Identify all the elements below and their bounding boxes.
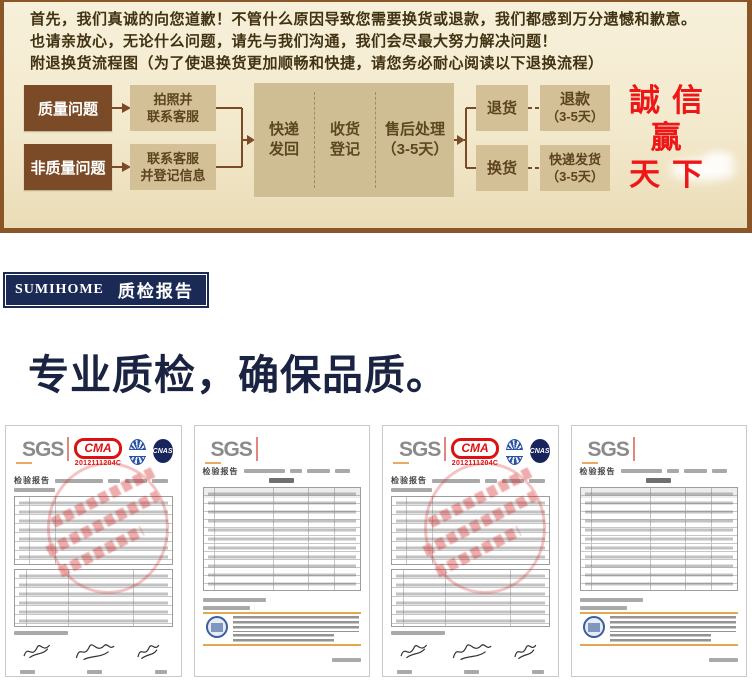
blurred-text <box>244 469 285 473</box>
slogan-line-3: 天 下 <box>612 156 722 193</box>
flow-reship-line2: （3-5天） <box>546 168 604 185</box>
sgs-logo-accent <box>633 437 635 461</box>
sgs-logo-text: SGS <box>211 438 252 461</box>
sample-note-line <box>14 486 173 493</box>
sgs-logo-accent <box>67 437 69 461</box>
cma-logo: CMA 2012111204C <box>451 438 498 467</box>
blurred-text <box>203 598 266 602</box>
certificate-footer <box>203 612 362 646</box>
flow-exchange-label: 换货 <box>487 160 517 177</box>
report-label: 检验报告 <box>203 466 239 477</box>
page: 首先，我们真诚的向您道歉！不管什么原因导致您需要换货或退款，我们都感到万分遗憾和… <box>0 0 752 692</box>
certificate-footer <box>580 612 739 646</box>
blurred-table-text <box>19 572 168 624</box>
integrity-slogan: 誠 信 贏 天 下 <box>612 82 722 193</box>
blurred-table-text <box>396 572 545 624</box>
signatures <box>391 637 550 667</box>
test-results-table <box>203 487 362 591</box>
sgs-logo-underline <box>582 462 598 464</box>
table-title-line <box>580 477 739 485</box>
certificate-3-header: SGS CMA 2012111204C CNAS <box>391 437 550 472</box>
report-banner-title: 质检报告 <box>118 277 194 302</box>
apology-text: 首先，我们真诚的向您道歉！不管什么原因导致您需要换货或退款，我们都感到万分遗憾和… <box>4 2 747 75</box>
blurred-text <box>391 631 445 635</box>
proc-col2-line2: 登记 <box>330 140 360 160</box>
blurred-text <box>14 631 68 635</box>
blurred-text <box>485 479 498 483</box>
blurred-text <box>432 479 480 483</box>
flow-reship-line1: 快递发货 <box>549 151 601 168</box>
cnas-text: CNAS <box>153 448 173 455</box>
cma-logo-text: CMA <box>461 441 488 455</box>
info-table <box>391 496 550 565</box>
cma-logo-mark: CMA <box>451 438 498 459</box>
flow-return-label: 退货 <box>487 100 517 117</box>
flow-refund-box: 退款 （3-5天） <box>540 85 610 131</box>
sgs-logo: SGS <box>580 437 633 461</box>
certificates-row: SGS CMA 2012111204C CNAS 检验报告 <box>0 425 752 677</box>
certificate-4-header: SGS <box>580 437 739 463</box>
sgs-logo-accent <box>444 437 446 461</box>
quality-headline: 专业质检，确保品质。 <box>28 341 752 401</box>
flow-return-box: 退货 <box>476 85 528 131</box>
flow-contact-line1: 联系客服 <box>147 150 199 167</box>
ilac-mra-emblem-icon <box>129 439 146 465</box>
slogan-line-1: 誠 信 <box>612 82 722 119</box>
table-notes <box>580 594 739 610</box>
cnas-emblem-icon: CNAS <box>153 439 173 463</box>
sgs-logo-text: SGS <box>588 438 629 461</box>
results-table <box>14 569 173 627</box>
sgs-logo: SGS <box>391 437 444 461</box>
certificate-1: SGS CMA 2012111204C CNAS 检验报告 <box>5 425 182 677</box>
blurred-text <box>108 479 121 483</box>
blurred-footer-text <box>233 634 334 642</box>
blurred-text <box>125 479 147 483</box>
blurred-text <box>712 469 728 473</box>
flow-process-aftersale: 售后处理 （3-5天） <box>376 92 454 188</box>
flow-quality-problem-box: 质量问题 <box>24 85 112 131</box>
flow-refund-line2: （3-5天） <box>546 108 604 125</box>
flow-refund-line1: 退款 <box>560 91 590 108</box>
sgs-logo: SGS <box>14 437 67 461</box>
blurred-text <box>332 658 361 662</box>
seal-inner <box>588 623 600 632</box>
flow-quality-problem-label: 质量问题 <box>38 98 98 119</box>
report-banner-inner: SUMIHOME 质检报告 <box>5 274 207 306</box>
cma-logo-text: CMA <box>84 441 111 455</box>
cnas-emblem-icon: CNAS <box>530 439 550 463</box>
report-number-line: 检验报告 <box>391 475 550 486</box>
notice-line-3: 附退换货流程图（为了使退换货更加顺畅和快捷，请您务必耐心阅读以下退换流程） <box>30 53 747 75</box>
blurred-footer-text <box>233 616 360 632</box>
blurred-table-text <box>396 499 545 562</box>
report-number-line: 检验报告 <box>203 466 362 477</box>
blurred-text <box>152 479 168 483</box>
footer-tail-line <box>203 649 362 667</box>
blurred-text <box>55 479 103 483</box>
signature-strokes <box>391 637 550 665</box>
blurred-text <box>397 670 412 674</box>
sgs-logo-underline <box>205 462 221 464</box>
proc-col1-line1: 快递 <box>269 120 299 140</box>
blurred-footer-text <box>610 616 737 632</box>
certificate-3: SGS CMA 2012111204C CNAS 检验报告 <box>382 425 559 677</box>
report-banner: SUMIHOME 质检报告 <box>3 272 209 308</box>
seal-inner <box>211 623 223 632</box>
blurred-text <box>269 478 294 483</box>
blurred-text <box>391 488 432 492</box>
blurred-text <box>684 469 706 473</box>
flow-photo-line1: 拍照并 <box>153 91 192 108</box>
sgs-logo-text: SGS <box>399 438 440 461</box>
slogan-line-2: 贏 <box>612 119 722 156</box>
flow-non-quality-problem-label: 非质量问题 <box>30 157 105 178</box>
table-notes <box>203 594 362 610</box>
report-label: 检验报告 <box>580 466 616 477</box>
proc-col2-line1: 收货 <box>330 120 360 140</box>
signatures <box>14 637 173 667</box>
signature-strokes <box>14 637 173 665</box>
certificate-1-header: SGS CMA 2012111204C CNAS <box>14 437 173 472</box>
proc-col3-line1: 售后处理 <box>385 120 445 140</box>
cma-code: 2012111204C <box>451 460 498 467</box>
proc-col3-line2: （3-5天） <box>382 140 449 160</box>
company-line <box>391 627 550 635</box>
blurred-footer-text <box>610 634 711 642</box>
results-table <box>391 569 550 627</box>
cnas-text: CNAS <box>530 448 550 455</box>
flow-photo-line2: 联系客服 <box>147 108 199 125</box>
ilac-band <box>506 449 523 457</box>
cma-code: 2012111204C <box>74 460 121 467</box>
cma-logo: CMA 2012111204C <box>74 438 121 467</box>
blurred-text <box>155 670 167 674</box>
seal-stamp-icon <box>583 616 605 638</box>
blurred-table-text <box>208 490 357 588</box>
report-number-line: 检验报告 <box>580 466 739 477</box>
company-line <box>14 627 173 635</box>
sgs-logo: SGS <box>203 437 256 461</box>
signature-labels <box>391 670 550 674</box>
footer-tail-line <box>580 649 739 667</box>
notice-line-2: 也请亲放心，无论什么问题，请先与我们沟通，我们会尽最大努力解决问题！ <box>30 31 747 53</box>
flow-exchange-box: 换货 <box>476 145 528 191</box>
report-label: 检验报告 <box>14 475 50 486</box>
info-table <box>14 496 173 565</box>
blurred-text <box>335 469 351 473</box>
seal-stamp-icon <box>206 616 228 638</box>
blurred-text <box>580 606 628 610</box>
brand-logo: SUMIHOME <box>15 282 104 298</box>
blurred-text <box>464 670 479 674</box>
flow-contact-register-box: 联系客服 并登记信息 <box>130 144 216 190</box>
certificate-4: SGS 检验报告 <box>571 425 748 677</box>
blurred-text <box>307 469 329 473</box>
blurred-table-text <box>19 499 168 562</box>
blurred-text <box>646 478 671 483</box>
signature-labels <box>14 670 173 674</box>
proc-col1-line2: 发回 <box>269 140 299 160</box>
flow-process-ship-back: 快递 发回 <box>254 92 315 188</box>
certificate-2-header: SGS <box>203 437 362 463</box>
blurred-text <box>20 670 35 674</box>
flow-photo-contact-box: 拍照并 联系客服 <box>130 85 216 131</box>
cma-logo-mark: CMA <box>74 438 121 459</box>
flow-non-quality-problem-box: 非质量问题 <box>24 144 112 190</box>
sample-note-line <box>391 486 550 493</box>
blurred-table-text <box>585 490 734 588</box>
flow-process-receive-register: 收货 登记 <box>315 92 376 188</box>
notice-line-1: 首先，我们真诚的向您道歉！不管什么原因导致您需要换货或退款，我们都感到万分遗憾和… <box>30 9 747 31</box>
certificate-2: SGS 检验报告 <box>194 425 371 677</box>
blurred-text <box>529 479 545 483</box>
ilac-band <box>129 449 146 457</box>
blurred-text <box>580 598 643 602</box>
sgs-logo-underline <box>16 462 32 464</box>
sgs-logo-text: SGS <box>22 438 63 461</box>
flow-reship-box: 快递发货 （3-5天） <box>540 145 610 191</box>
blurred-text <box>290 469 303 473</box>
return-policy-section: 首先，我们真诚的向您道歉！不管什么原因导致您需要换货或退款，我们都感到万分遗憾和… <box>0 0 752 233</box>
blurred-text <box>14 488 55 492</box>
report-label: 检验报告 <box>391 475 427 486</box>
ilac-mra-emblem-icon <box>506 439 523 465</box>
flow-process-box: 快递 发回 收货 登记 售后处理 （3-5天） <box>254 83 454 197</box>
blurred-text <box>709 658 738 662</box>
blurred-text <box>502 479 524 483</box>
sgs-logo-accent <box>256 437 258 461</box>
blurred-text <box>667 469 680 473</box>
report-number-line: 检验报告 <box>14 475 173 486</box>
blurred-text <box>203 606 251 610</box>
blurred-text <box>532 670 544 674</box>
sgs-logo-underline <box>393 462 409 464</box>
blurred-text <box>87 670 102 674</box>
table-title-line <box>203 477 362 485</box>
blurred-text <box>621 469 662 473</box>
flow-contact-line2: 并登记信息 <box>140 167 205 184</box>
test-results-table <box>580 487 739 591</box>
